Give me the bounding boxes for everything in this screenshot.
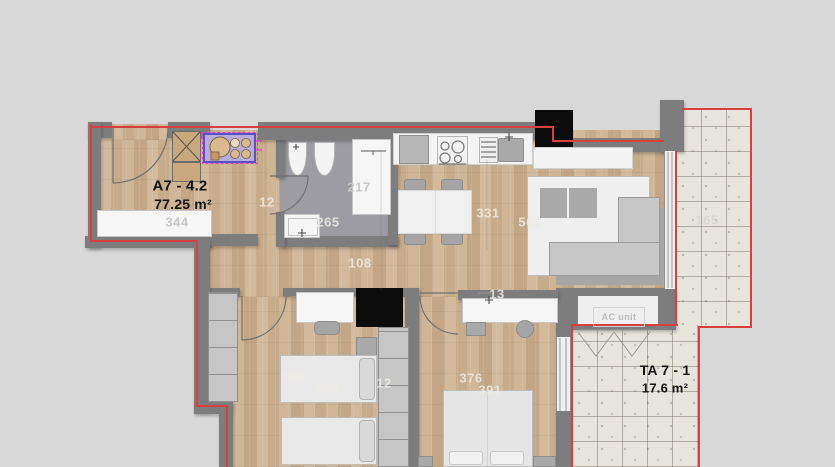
bedroom1-nightstand bbox=[356, 337, 377, 356]
section-marker-middle bbox=[356, 288, 403, 327]
dimension-label: 391 bbox=[478, 383, 501, 398]
dimension-label: 331 bbox=[476, 206, 499, 221]
shower bbox=[352, 139, 391, 215]
double-bed-seam bbox=[487, 391, 488, 466]
bedroom2-terrace-window bbox=[556, 337, 571, 411]
sink-drainboard bbox=[479, 137, 498, 163]
sofa-seat bbox=[549, 242, 660, 276]
dimension-label: 398 bbox=[315, 381, 338, 396]
wall-bath-top bbox=[258, 122, 398, 140]
wall-hall-bottom bbox=[210, 234, 258, 246]
bedroom2-pillow bbox=[449, 451, 483, 465]
bedroom2-desk-drawers bbox=[466, 322, 486, 336]
boundary-line bbox=[571, 326, 573, 467]
wall-bedroom2-right-lower bbox=[556, 410, 571, 467]
boundary-line bbox=[196, 240, 198, 407]
boundary-line bbox=[226, 405, 228, 467]
bedroom2-nightstand-right bbox=[533, 456, 556, 467]
dimension-label: 344 bbox=[165, 215, 188, 230]
bedroom2-nightstand-left bbox=[418, 456, 433, 467]
dimension-label: 265 bbox=[316, 215, 339, 230]
ac-unit-label: AC unit bbox=[602, 312, 637, 322]
boundary-line bbox=[196, 405, 228, 407]
boundary-line bbox=[698, 326, 700, 467]
unit-area-label: 77.25 m² bbox=[154, 196, 212, 212]
bedrooms-shared-wardrobe bbox=[378, 327, 409, 467]
cooktop bbox=[437, 136, 468, 165]
boundary-line bbox=[90, 126, 554, 128]
dimension-label: 13 bbox=[489, 287, 504, 302]
bedroom1-desk bbox=[296, 292, 354, 323]
entry-closet bbox=[97, 210, 212, 237]
refrigerator bbox=[399, 135, 429, 164]
bedroom2-desk bbox=[462, 298, 558, 323]
ac-unit-label-box: AC unit bbox=[593, 307, 645, 327]
boundary-line bbox=[750, 108, 752, 328]
floor-plan: AC unit bbox=[0, 0, 835, 467]
wall-entry-bottom bbox=[85, 236, 212, 248]
sofa-cushion bbox=[540, 188, 567, 218]
dimension-label: 217 bbox=[347, 180, 370, 195]
dimension-label: 561 bbox=[518, 215, 541, 230]
boundary-line bbox=[682, 108, 752, 110]
sink-basin bbox=[498, 138, 524, 162]
laundry-niche bbox=[203, 133, 256, 163]
dimension-label: 355 bbox=[281, 370, 304, 385]
terrace-name-label: TA 7 - 1 bbox=[640, 362, 691, 378]
dimension-label: 12 bbox=[259, 195, 274, 210]
bedroom1-bed2-pillow bbox=[359, 420, 375, 462]
exterior-notch bbox=[194, 414, 219, 467]
bedroom1-bed-pillow bbox=[359, 358, 375, 400]
exterior-left bbox=[0, 244, 194, 467]
unit-name-label: A7 - 4.2 bbox=[153, 178, 208, 195]
bedroom2-pillow bbox=[490, 451, 524, 465]
boundary-line bbox=[552, 140, 664, 142]
sofa-cushion bbox=[569, 188, 597, 218]
kitchen-counter-east bbox=[533, 147, 633, 169]
dimension-label: 12 bbox=[376, 376, 391, 391]
bedroom1-wardrobe bbox=[208, 292, 238, 402]
terrace-area-label: 17.6 m² bbox=[642, 381, 688, 396]
boundary-line bbox=[90, 240, 198, 242]
bathroom-vanity bbox=[284, 214, 320, 238]
dining-table-seam bbox=[435, 191, 436, 233]
wall-block-top-right bbox=[660, 100, 684, 152]
bedroom1-desk-chair bbox=[314, 321, 340, 335]
dimension-label: 108 bbox=[348, 256, 371, 271]
boundary-line bbox=[699, 326, 752, 328]
terrace-main-tiles bbox=[572, 325, 700, 467]
vanity-basin bbox=[288, 218, 318, 236]
dimension-label: 165 bbox=[695, 213, 718, 228]
boundary-line bbox=[90, 124, 92, 242]
boundary-line bbox=[675, 151, 677, 326]
bedroom2-desk-chair bbox=[516, 320, 534, 338]
shaft-box bbox=[172, 131, 201, 162]
